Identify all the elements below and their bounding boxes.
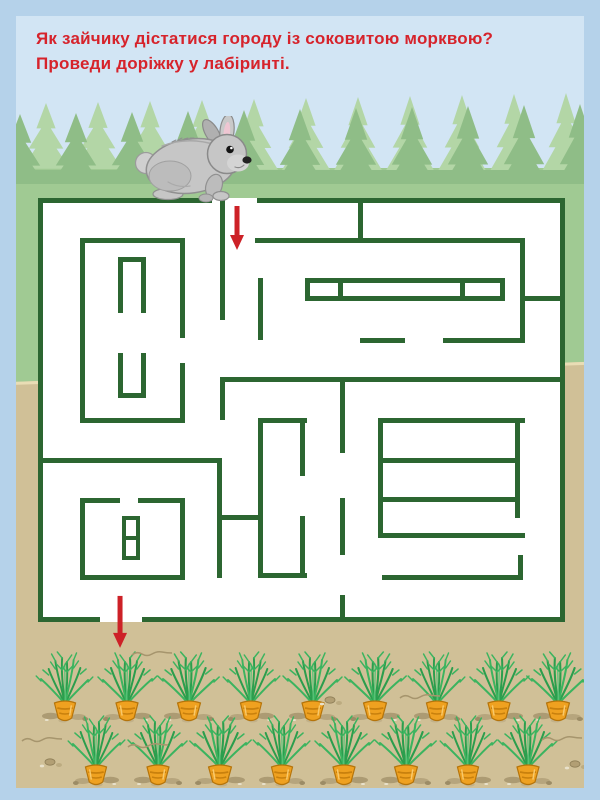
carrot-garden <box>0 628 600 800</box>
carrot-plant <box>470 652 529 723</box>
entry-arrow-icon <box>230 206 244 250</box>
worksheet-page: Як зайчику дістатися городу із соковитою… <box>0 0 600 800</box>
maze-arrows <box>38 194 565 652</box>
bunny-eye <box>226 146 234 154</box>
carrot-plant <box>375 716 436 787</box>
maze-area[interactable] <box>38 198 565 622</box>
soil-squiggle <box>542 737 582 741</box>
soil-squiggle <box>22 738 62 742</box>
carrot-plant <box>223 652 280 723</box>
soil-pebbles <box>320 697 342 706</box>
title-line-1: Як зайчику дістатися городу із соковитою… <box>36 27 576 52</box>
carrot-plant <box>253 716 310 787</box>
title-line-2: Проведи доріжку у лабіринті. <box>36 52 576 77</box>
carrot-plant <box>440 716 497 787</box>
soil-squiggle <box>132 652 172 656</box>
carrot-plant <box>128 716 187 787</box>
carrot-plant <box>68 716 125 787</box>
carrot-plant <box>190 716 251 787</box>
carrot-plant <box>36 652 93 723</box>
forest-illustration <box>0 74 600 184</box>
carrot-plant <box>158 652 219 723</box>
carrot-plant <box>98 652 157 723</box>
bunny-illustration <box>128 116 278 208</box>
page-title: Як зайчику дістатися городу із соковитою… <box>36 27 576 76</box>
carrot-plant <box>345 652 406 723</box>
soil-pebbles <box>40 759 62 768</box>
soil-pebbles <box>565 761 587 770</box>
carrot-plant <box>283 652 342 723</box>
carrot-plant <box>408 652 465 723</box>
bunny-front-paw <box>213 192 229 201</box>
bunny-nose <box>242 156 251 163</box>
carrot-plant <box>527 652 588 723</box>
carrot-plant <box>498 716 557 787</box>
carrot-plant <box>315 716 374 787</box>
